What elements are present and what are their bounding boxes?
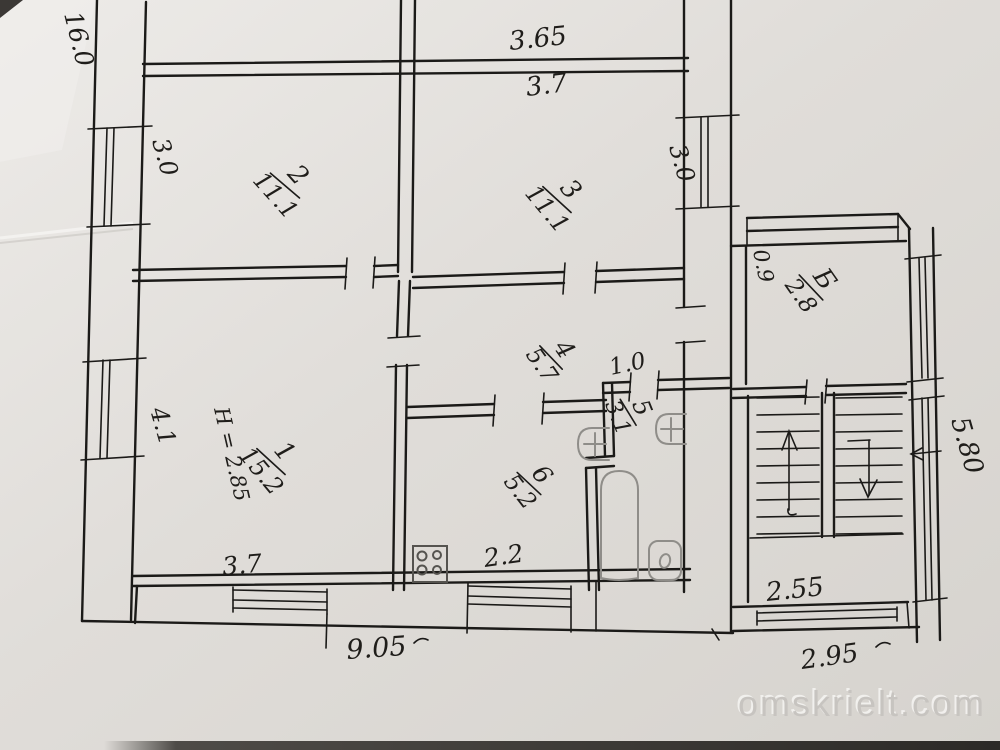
dim-bottom-total: 9.05 bbox=[345, 631, 407, 666]
dim-top-inner: 3.7 bbox=[524, 68, 569, 103]
dim-kitchen-bottom: 2.2 bbox=[481, 539, 525, 573]
dim-top-outer: 3.65 bbox=[508, 21, 569, 57]
dim-stair-width: 2.55 bbox=[764, 572, 826, 608]
floor-plan-photo: 16.0 3.65 3.7 3.0 3.0 0.9 4.1 H = 2.85 3… bbox=[0, 0, 1000, 750]
photo-bottom-edge bbox=[104, 741, 1000, 750]
dim-room1-bottom: 3.7 bbox=[221, 549, 263, 581]
watermark-text: omskrielt.com bbox=[738, 683, 986, 724]
floor-plan-canvas: 16.0 3.65 3.7 3.0 3.0 0.9 4.1 H = 2.85 3… bbox=[0, 0, 1000, 750]
watermark: omskrielt.com omskrielt.com bbox=[736, 681, 986, 724]
paper-background bbox=[0, 0, 1000, 750]
